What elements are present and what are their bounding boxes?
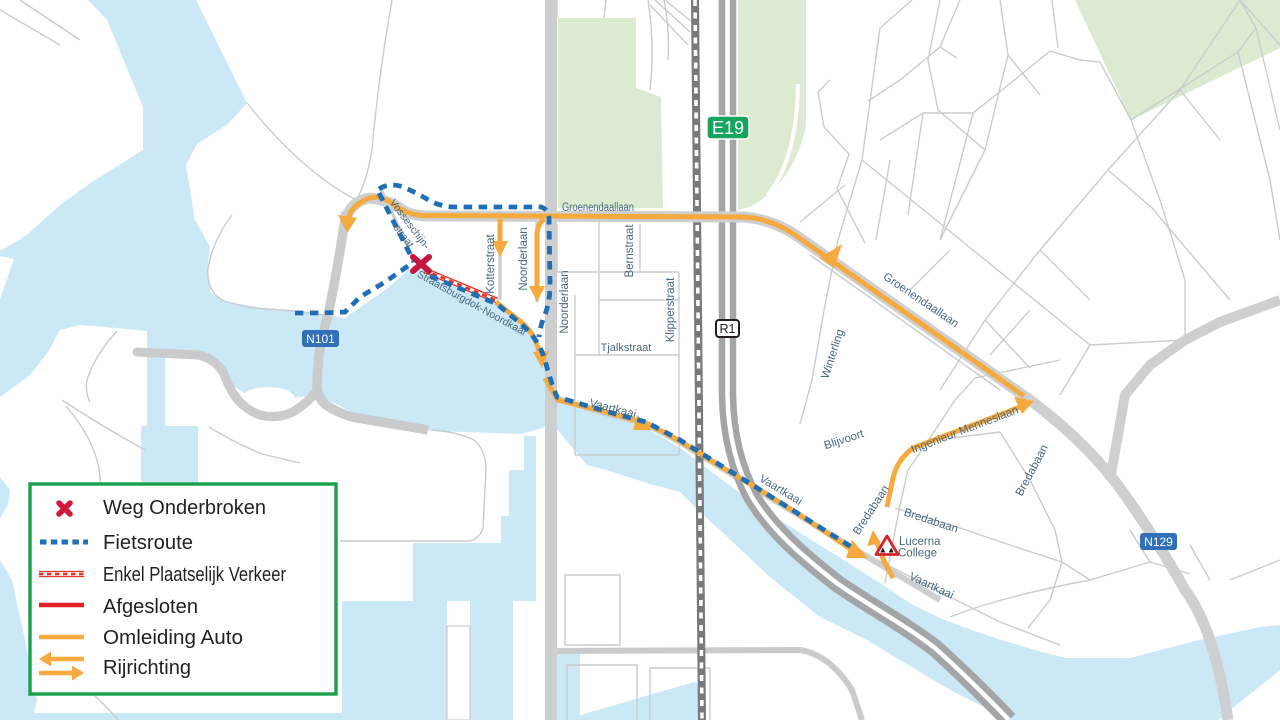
svg-text:Rijrichting: Rijrichting bbox=[103, 657, 191, 679]
svg-text:Lucerna: Lucerna bbox=[899, 536, 941, 548]
svg-text:Bernstraat: Bernstraat bbox=[624, 224, 636, 278]
svg-text:Kotterstraat: Kotterstraat bbox=[485, 233, 497, 293]
svg-text:Groenendaallaan: Groenendaallaan bbox=[562, 202, 634, 214]
svg-text:N129: N129 bbox=[1144, 535, 1173, 549]
svg-text:Afgesloten: Afgesloten bbox=[103, 596, 198, 618]
svg-text:Noorderlaan: Noorderlaan bbox=[559, 270, 571, 333]
svg-text:Noorderlaan: Noorderlaan bbox=[518, 227, 530, 290]
svg-text:Klipperstraat: Klipperstraat bbox=[665, 277, 677, 342]
svg-text:N101: N101 bbox=[306, 332, 335, 346]
svg-text:Weg Onderbroken: Weg Onderbroken bbox=[103, 497, 266, 519]
svg-text:Fietsroute: Fietsroute bbox=[103, 532, 193, 554]
svg-text:R1: R1 bbox=[720, 322, 736, 336]
svg-text:E19: E19 bbox=[712, 118, 744, 138]
svg-text:▲▲: ▲▲ bbox=[879, 545, 896, 555]
svg-text:College: College bbox=[898, 548, 937, 560]
svg-text:Enkel Plaatselijk Verkeer: Enkel Plaatselijk Verkeer bbox=[103, 564, 286, 586]
svg-text:Tjalkstraat: Tjalkstraat bbox=[601, 342, 652, 354]
svg-text:Omleiding Auto: Omleiding Auto bbox=[103, 627, 243, 649]
